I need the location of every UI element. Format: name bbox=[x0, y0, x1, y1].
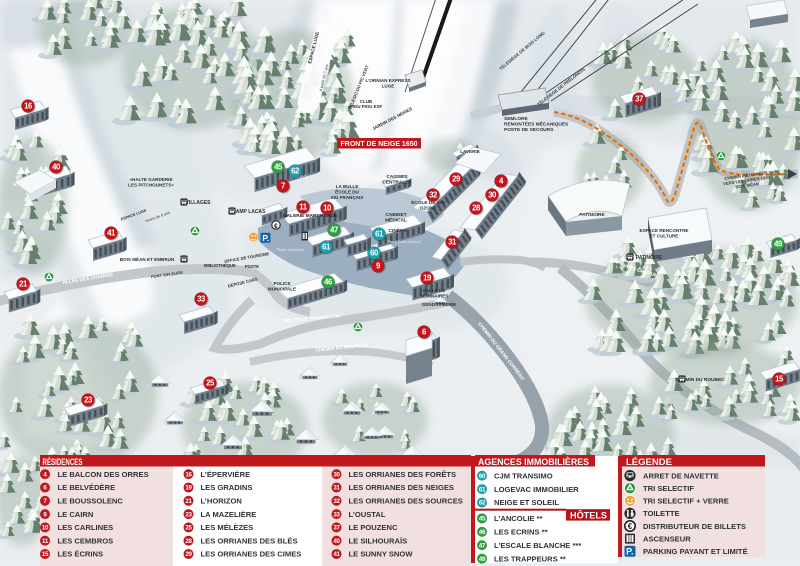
svg-text:41: 41 bbox=[107, 229, 116, 238]
svg-text:10: 10 bbox=[323, 204, 332, 213]
svg-text:28: 28 bbox=[185, 538, 192, 545]
svg-text:7: 7 bbox=[281, 182, 285, 191]
svg-text:40: 40 bbox=[333, 538, 340, 545]
svg-text:29: 29 bbox=[452, 175, 461, 184]
svg-text:60: 60 bbox=[479, 473, 486, 480]
svg-text:16: 16 bbox=[185, 471, 192, 478]
svg-text:32: 32 bbox=[333, 498, 340, 505]
svg-text:DISTRIBUTEUR DE BILLETS: DISTRIBUTEUR DE BILLETS bbox=[643, 522, 746, 531]
svg-text:LES TRAPPEURS **: LES TRAPPEURS ** bbox=[494, 554, 566, 563]
svg-text:41: 41 bbox=[333, 551, 340, 558]
svg-text:LOGEVAC IMMOBILIER: LOGEVAC IMMOBILIER bbox=[494, 485, 579, 494]
svg-text:GENDARMERIE: GENDARMERIE bbox=[422, 302, 456, 307]
svg-text:P.: P. bbox=[626, 546, 633, 556]
svg-text:37: 37 bbox=[333, 525, 340, 532]
svg-text:LA MAZELIÈRE: LA MAZELIÈRE bbox=[201, 510, 257, 519]
svg-text:25: 25 bbox=[206, 379, 215, 388]
svg-text:49: 49 bbox=[774, 240, 783, 249]
svg-text:HÔTELS: HÔTELS bbox=[570, 510, 607, 521]
svg-text:L’ANCOLIE **: L’ANCOLIE ** bbox=[494, 514, 543, 523]
svg-text:61: 61 bbox=[322, 243, 331, 252]
svg-text:31: 31 bbox=[448, 238, 457, 247]
svg-text:19: 19 bbox=[423, 274, 432, 283]
svg-text:49: 49 bbox=[479, 556, 486, 563]
svg-text:LES ÉCRINS: LES ÉCRINS bbox=[58, 550, 104, 559]
svg-text:BOIS MÉAN ET EMBRUN: BOIS MÉAN ET EMBRUN bbox=[120, 255, 175, 262]
svg-text:LE CAIRN: LE CAIRN bbox=[58, 510, 94, 519]
svg-text:21: 21 bbox=[19, 280, 28, 289]
svg-text:19: 19 bbox=[185, 485, 192, 492]
svg-text:BIBLIOTHÈQUE: BIBLIOTHÈQUE bbox=[204, 263, 236, 268]
svg-text:61: 61 bbox=[375, 230, 384, 239]
svg-text:21: 21 bbox=[185, 498, 192, 505]
svg-text:€: € bbox=[628, 522, 633, 531]
svg-text:TRI SELECTIF + VERRE: TRI SELECTIF + VERRE bbox=[643, 497, 729, 506]
svg-text:LES ORRIANES DES SOURCES: LES ORRIANES DES SOURCES bbox=[349, 497, 463, 506]
svg-text:LAVERIE: LAVERIE bbox=[460, 149, 480, 154]
svg-text:ASCENSEUR: ASCENSEUR bbox=[643, 534, 691, 543]
svg-text:RÉSIDENCES: RÉSIDENCES bbox=[43, 457, 83, 467]
svg-text:LE POUZENC: LE POUZENC bbox=[349, 523, 398, 532]
svg-text:33: 33 bbox=[197, 295, 206, 304]
svg-text:62: 62 bbox=[479, 500, 486, 507]
svg-text:47: 47 bbox=[479, 542, 486, 549]
svg-text:LES ORRIANES DES NEIGES: LES ORRIANES DES NEIGES bbox=[349, 483, 455, 492]
svg-text:LES MÉLÈZES: LES MÉLÈZES bbox=[201, 523, 254, 532]
svg-text:PATINOIRE: PATINOIRE bbox=[579, 212, 605, 218]
svg-text:47: 47 bbox=[330, 226, 338, 235]
svg-text:45: 45 bbox=[479, 516, 486, 523]
svg-text:CJM TRANSIMO: CJM TRANSIMO bbox=[494, 471, 553, 480]
svg-text:LES CARLINES: LES CARLINES bbox=[58, 523, 114, 532]
svg-text:LE SILHOURAÏS: LE SILHOURAÏS bbox=[349, 536, 408, 545]
svg-text:11: 11 bbox=[42, 538, 49, 545]
svg-text:FRONT DE NEIGE 1650: FRONT DE NEIGE 1650 bbox=[340, 141, 417, 148]
svg-text:37: 37 bbox=[635, 95, 643, 104]
svg-text:NEIGE ET SOLEIL: NEIGE ET SOLEIL bbox=[494, 498, 559, 507]
svg-text:LES ORRIANES DES CIMES: LES ORRIANES DES CIMES bbox=[201, 550, 302, 559]
svg-text:11: 11 bbox=[299, 203, 308, 212]
svg-text:LE BOUSSOLENC: LE BOUSSOLENC bbox=[58, 497, 124, 506]
svg-text:€: € bbox=[274, 223, 278, 230]
svg-text:CABINETMÉDICAL: CABINETMÉDICAL bbox=[385, 212, 407, 224]
svg-text:25: 25 bbox=[185, 525, 192, 532]
svg-text:ARRET DE NAVETTE: ARRET DE NAVETTE bbox=[643, 471, 719, 480]
svg-text:L’HORIZON: L’HORIZON bbox=[201, 497, 242, 506]
svg-text:23: 23 bbox=[84, 396, 93, 405]
svg-text:LE BALCON DES ORRES: LE BALCON DES ORRES bbox=[58, 470, 149, 479]
svg-text:P.: P. bbox=[262, 233, 269, 243]
svg-text:15: 15 bbox=[775, 375, 784, 384]
svg-text:23: 23 bbox=[185, 511, 192, 518]
svg-text:10: 10 bbox=[42, 525, 49, 532]
svg-text:60: 60 bbox=[370, 249, 379, 258]
svg-text:AGENCES IMMOBILIÈRES: AGENCES IMMOBILIÈRES bbox=[478, 457, 589, 467]
svg-text:LES ORRIANES DES FORÊTS: LES ORRIANES DES FORÊTS bbox=[349, 470, 457, 479]
svg-text:«HALTE GARDERIELES PITCHOUNETS: «HALTE GARDERIELES PITCHOUNETS» bbox=[128, 177, 174, 187]
svg-text:46: 46 bbox=[479, 529, 486, 536]
svg-text:L’OUSTAL: L’OUSTAL bbox=[349, 510, 386, 519]
svg-text:LE BELVÉDÈRE: LE BELVÉDÈRE bbox=[58, 483, 116, 492]
svg-text:SALLE DESÉMINAIRES: SALLE DESÉMINAIRES bbox=[420, 288, 449, 298]
svg-text:PATINOIRE: PATINOIRE bbox=[636, 255, 663, 261]
svg-text:33: 33 bbox=[333, 511, 340, 518]
svg-text:32: 32 bbox=[429, 191, 438, 200]
svg-text:46: 46 bbox=[324, 278, 333, 287]
svg-text:61: 61 bbox=[479, 486, 486, 493]
svg-text:LES ORRIANES DES BLÉS: LES ORRIANES DES BLÉS bbox=[201, 536, 298, 545]
svg-text:30: 30 bbox=[333, 471, 340, 478]
svg-text:LE SUNNY SNOW: LE SUNNY SNOW bbox=[349, 550, 414, 559]
svg-text:15: 15 bbox=[42, 551, 49, 558]
svg-text:Place d’accueil: Place d’accueil bbox=[277, 247, 304, 252]
svg-text:31: 31 bbox=[333, 485, 340, 492]
svg-text:29: 29 bbox=[185, 551, 192, 558]
svg-text:30: 30 bbox=[488, 191, 497, 200]
svg-text:Place Émile Hodoul: Place Émile Hodoul bbox=[387, 239, 420, 244]
svg-text:LÉGENDE: LÉGENDE bbox=[626, 457, 672, 467]
svg-text:LES GRADINS: LES GRADINS bbox=[201, 483, 253, 492]
svg-text:LES ECRINS **: LES ECRINS ** bbox=[494, 528, 548, 537]
svg-text:16: 16 bbox=[24, 102, 33, 111]
svg-text:PARKING PAYANT ET LIMITÉ: PARKING PAYANT ET LIMITÉ bbox=[643, 547, 748, 556]
svg-text:62: 62 bbox=[291, 167, 300, 176]
svg-text:TOILETTE: TOILETTE bbox=[643, 509, 680, 518]
svg-text:45: 45 bbox=[274, 163, 283, 172]
svg-text:L’ÉPERVIÈRE: L’ÉPERVIÈRE bbox=[201, 470, 251, 479]
svg-text:L’ESCALE BLANCHE ***: L’ESCALE BLANCHE *** bbox=[494, 541, 581, 550]
svg-text:VILLAGES: VILLAGES bbox=[185, 200, 211, 206]
svg-text:40: 40 bbox=[52, 163, 61, 172]
svg-text:28: 28 bbox=[472, 204, 481, 213]
svg-text:TRI SELECTIF: TRI SELECTIF bbox=[643, 484, 694, 493]
svg-text:POSTE: POSTE bbox=[245, 264, 259, 269]
svg-text:LES CEMBROS: LES CEMBROS bbox=[58, 536, 114, 545]
